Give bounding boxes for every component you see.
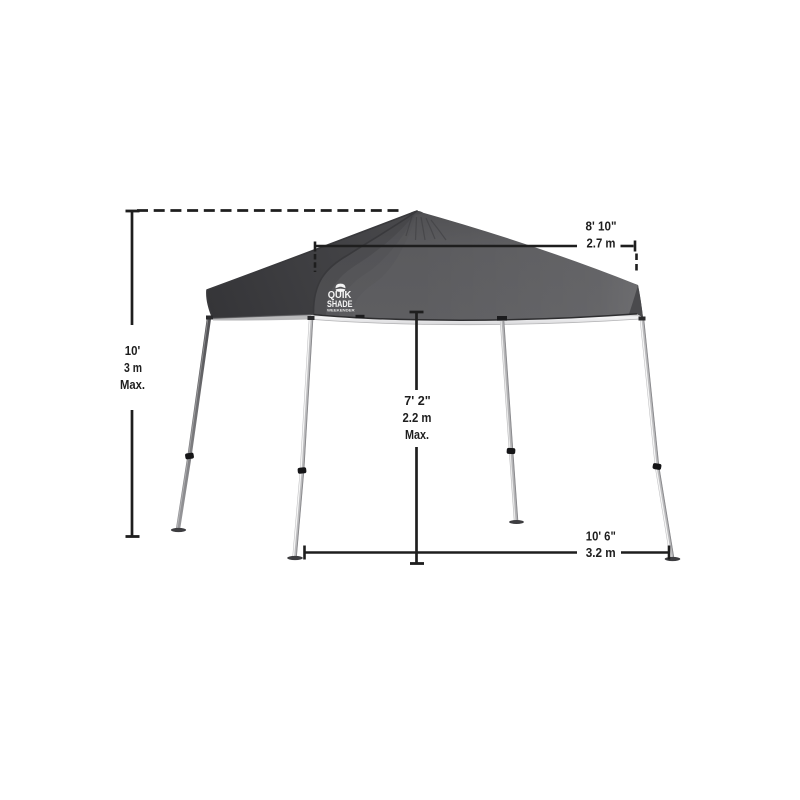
- svg-text:WEEKENDER: WEEKENDER: [327, 307, 355, 312]
- svg-text:8' 10": 8' 10": [586, 219, 617, 234]
- svg-text:7' 2": 7' 2": [404, 393, 431, 408]
- svg-text:10': 10': [125, 343, 141, 358]
- svg-text:Max.: Max.: [405, 427, 429, 442]
- svg-text:2.7 m: 2.7 m: [587, 236, 616, 251]
- svg-text:3.2 m: 3.2 m: [586, 545, 616, 560]
- svg-text:10' 6": 10' 6": [586, 529, 616, 544]
- svg-text:3 m: 3 m: [124, 360, 142, 375]
- svg-text:Max.: Max.: [120, 377, 145, 392]
- svg-text:2.2 m: 2.2 m: [403, 410, 432, 425]
